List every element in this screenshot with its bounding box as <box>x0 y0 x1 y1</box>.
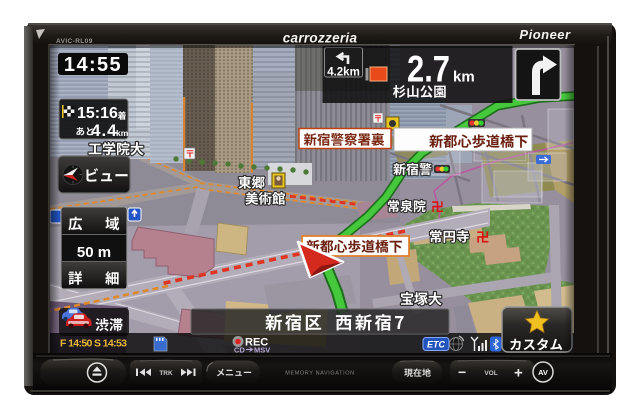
svg-text:carrozzeria: carrozzeria <box>283 31 358 46</box>
svg-text:km: km <box>453 69 475 86</box>
svg-text:Pioneer: Pioneer <box>519 27 571 42</box>
svg-text:15:16: 15:16 <box>77 105 118 122</box>
svg-text:VOL: VOL <box>484 370 497 377</box>
svg-text:2.7: 2.7 <box>407 49 450 90</box>
svg-text:+: + <box>514 365 523 382</box>
svg-text:AVIC-RL09: AVIC-RL09 <box>56 38 93 45</box>
svg-text:F 14:50 S 14:53: F 14:50 S 14:53 <box>60 338 127 350</box>
svg-text:MEMORY NAVIGATION: MEMORY NAVIGATION <box>285 371 354 377</box>
svg-text:4.2km: 4.2km <box>327 67 360 79</box>
svg-text:ETC: ETC <box>427 340 446 350</box>
svg-text:50 m: 50 m <box>77 244 111 261</box>
svg-text:−: − <box>458 364 466 380</box>
svg-text:14:55: 14:55 <box>64 54 122 76</box>
svg-text:km: km <box>116 128 129 138</box>
svg-text:4.4: 4.4 <box>91 121 118 140</box>
svg-text:TRK: TRK <box>159 370 173 377</box>
svg-text:AV: AV <box>538 368 548 377</box>
